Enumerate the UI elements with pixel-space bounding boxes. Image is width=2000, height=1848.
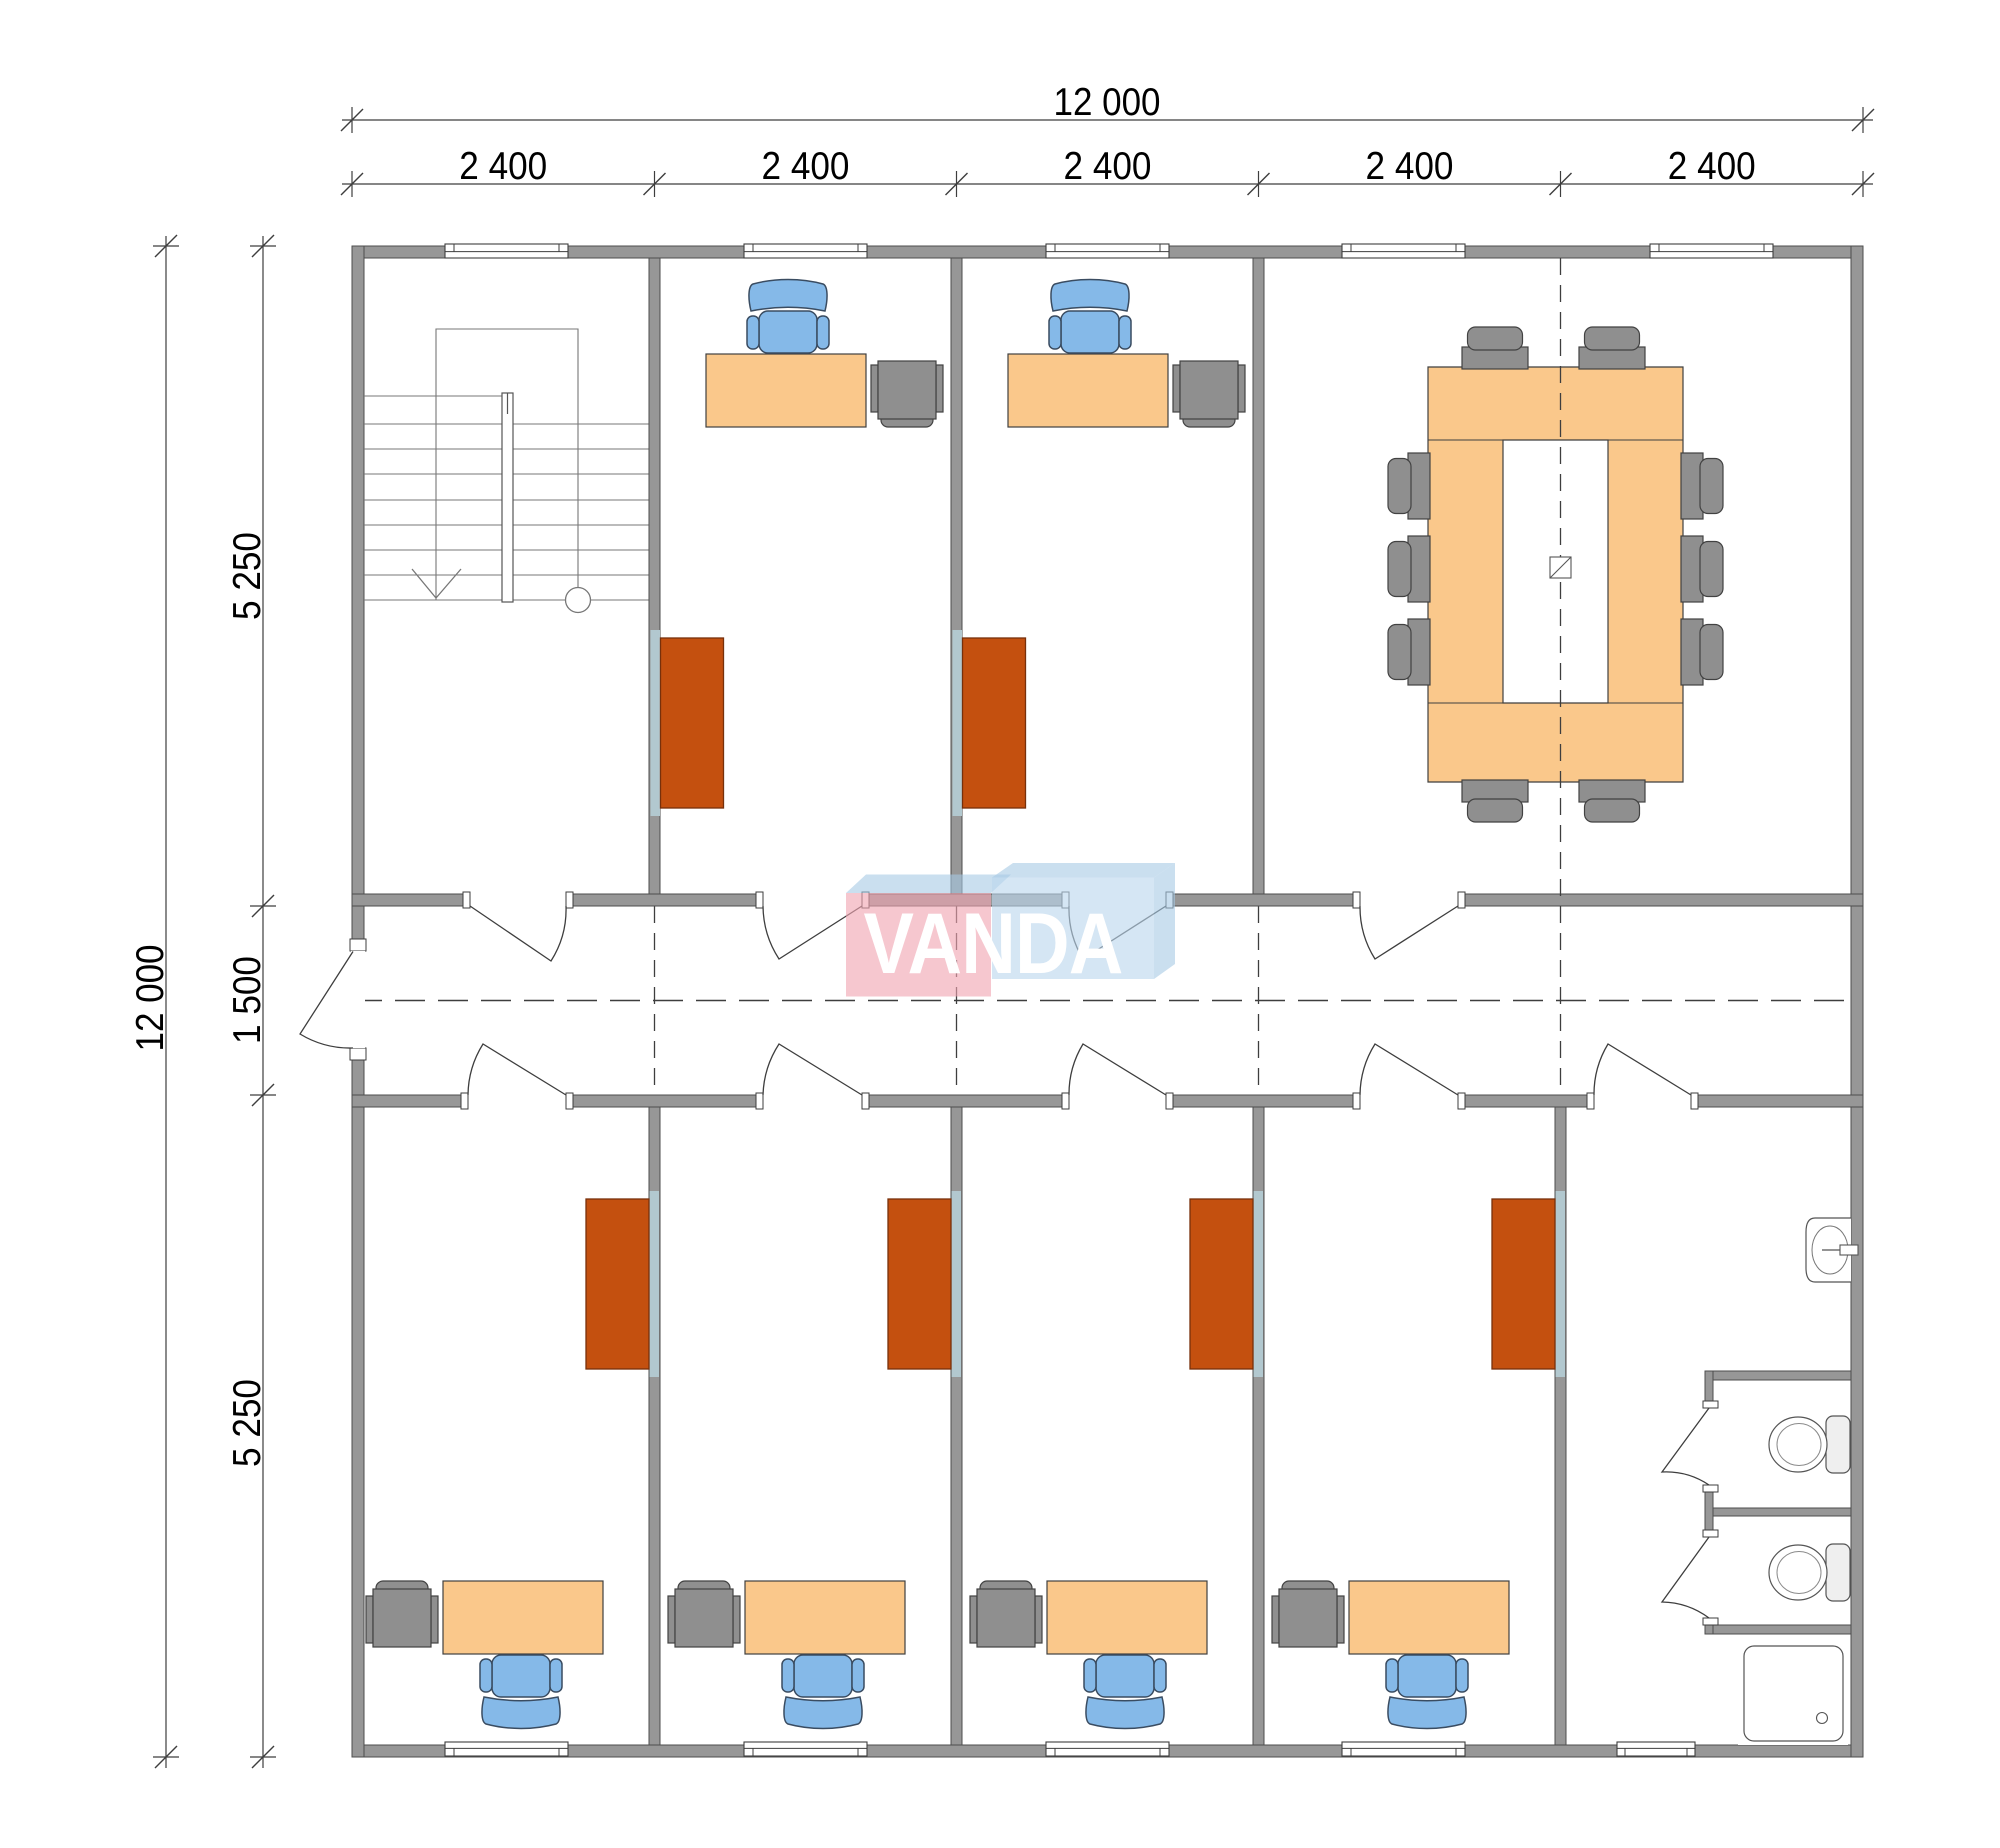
svg-text:VANDA: VANDA [863, 897, 1122, 993]
svg-text:12 000: 12 000 [129, 945, 172, 1052]
svg-text:2 400: 2 400 [1366, 145, 1454, 188]
svg-text:5 250: 5 250 [226, 1379, 269, 1467]
svg-text:1 500: 1 500 [226, 956, 269, 1044]
svg-text:2 400: 2 400 [762, 145, 850, 188]
svg-text:5 250: 5 250 [226, 532, 269, 620]
svg-text:2 400: 2 400 [1064, 145, 1152, 188]
svg-text:2 400: 2 400 [459, 145, 547, 188]
svg-text:12 000: 12 000 [1054, 81, 1161, 124]
svg-text:2 400: 2 400 [1668, 145, 1756, 188]
